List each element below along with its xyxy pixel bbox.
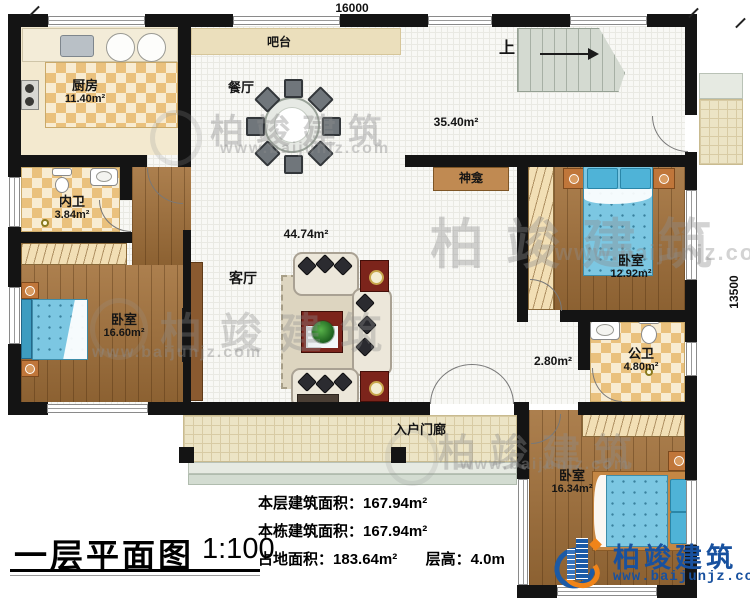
wall xyxy=(148,402,430,415)
window xyxy=(686,342,697,376)
wall xyxy=(517,585,557,598)
kitchen-bowl-icon xyxy=(137,33,166,62)
room-label-ensuite-bath: 内卫 3.84m² xyxy=(55,194,90,222)
wall xyxy=(578,322,590,370)
area-label-hallway: 2.80m² xyxy=(534,354,572,368)
window xyxy=(428,16,492,25)
room-label-kitchen: 厨房 11.40m² xyxy=(65,78,105,106)
kitchen-bowl-icon xyxy=(106,33,135,62)
ceiling-lamp-icon xyxy=(41,219,49,227)
toilet-bowl xyxy=(55,177,69,193)
stairs-direction-line xyxy=(540,53,590,55)
bed-pillow xyxy=(620,168,651,189)
title-underline xyxy=(10,569,260,572)
wall xyxy=(517,160,528,322)
wall xyxy=(685,14,697,115)
stat-storey-height: 层高： xyxy=(426,551,471,568)
stove-burner xyxy=(25,97,34,106)
nightstand-icon xyxy=(21,360,39,377)
room-label-bedroom-bottom: 卧室 16.34m² xyxy=(552,468,593,496)
floor-plan-page: 柏竣建筑 www.baijunjz.com 柏竣建筑 www.baijunjz.… xyxy=(0,0,750,614)
dining-table-top xyxy=(274,107,310,143)
toilet-icon xyxy=(52,168,72,176)
brand-url: www.baijunjz.com xyxy=(613,569,750,585)
stats-block: 本层建筑面积：167.94m² 本栋建筑面积：167.94m² 占地面积：183… xyxy=(258,490,528,573)
dimension-tick-icon xyxy=(735,18,746,29)
stairs-arrow-icon xyxy=(588,48,599,60)
window xyxy=(48,16,145,25)
window xyxy=(686,190,697,280)
wall xyxy=(8,232,132,243)
wall xyxy=(8,155,147,167)
bed-icon xyxy=(21,299,32,359)
wall xyxy=(183,230,191,402)
dimension-width: 16000 xyxy=(328,1,376,15)
area-label-dining: 35.40m² xyxy=(434,115,479,129)
side-porch-steps xyxy=(699,73,743,99)
bed-pillow xyxy=(587,168,618,189)
window xyxy=(233,16,340,25)
side-table-icon xyxy=(360,260,389,292)
room-label-living: 客厅 xyxy=(229,270,257,287)
table-lamp-icon xyxy=(369,270,384,285)
room-label-shrine: 神龛 xyxy=(459,171,483,185)
room-label-entry-porch: 入户门廊 xyxy=(394,422,446,437)
wardrobe-left xyxy=(21,243,127,265)
room-label-bedroom-left: 卧室 16.60m² xyxy=(104,312,145,340)
room-label-public-bath: 公卫 4.80m² xyxy=(624,346,659,374)
wall xyxy=(120,167,132,200)
dimension-height: 13500 xyxy=(727,270,741,314)
porch-step-1 xyxy=(188,462,517,474)
bar-counter xyxy=(191,28,401,55)
side-table-icon xyxy=(360,371,389,402)
area-label-living: 44.74m² xyxy=(284,227,329,241)
wall xyxy=(578,402,697,415)
room-label-dining: 餐厅 xyxy=(228,80,254,95)
table-lamp-icon xyxy=(369,381,384,396)
tv-cabinet-icon xyxy=(189,262,203,401)
porch-step-2 xyxy=(188,474,517,485)
wardrobe-bottom xyxy=(582,412,685,437)
sink-basin xyxy=(96,171,112,182)
stat-land-area: 占地面积：183.64m² 层高：4.0m xyxy=(258,546,528,574)
stairs-up-label: 上 xyxy=(499,40,515,59)
wall xyxy=(560,310,697,322)
title-underline-thin xyxy=(10,575,260,576)
nightstand-icon xyxy=(653,168,675,189)
wall xyxy=(340,14,428,27)
wall xyxy=(8,402,48,415)
plant-icon xyxy=(312,321,334,343)
stove-burner xyxy=(25,84,34,93)
entry-porch-floor xyxy=(183,415,517,462)
nightstand-icon xyxy=(563,168,585,189)
room-label-bedroom-right: 卧室 12.92m² xyxy=(611,253,652,281)
room-label-bar: 吧台 xyxy=(267,35,291,49)
sink-basin xyxy=(596,324,614,336)
window xyxy=(570,16,647,25)
wall xyxy=(517,402,529,479)
wall xyxy=(405,155,697,167)
toilet-bowl xyxy=(641,325,657,344)
chair-icon xyxy=(284,79,303,98)
stat-building-area: 本栋建筑面积：167.94m² xyxy=(258,518,528,546)
kitchen-sink-icon xyxy=(60,35,94,57)
chair-icon xyxy=(246,117,265,136)
wall xyxy=(8,14,21,177)
chair-icon xyxy=(284,155,303,174)
window xyxy=(9,177,20,227)
wall xyxy=(657,585,697,598)
window xyxy=(47,404,148,413)
stat-floor-area: 本层建筑面积：167.94m² xyxy=(258,490,528,518)
side-porch-floor xyxy=(699,99,743,165)
wall xyxy=(492,14,570,27)
wall xyxy=(685,376,697,480)
chair-icon xyxy=(322,117,341,136)
brand-logo-icon xyxy=(552,532,608,592)
watermark-logo-icon xyxy=(150,110,202,166)
nightstand-icon xyxy=(21,282,39,299)
window xyxy=(9,287,20,344)
porch-column xyxy=(179,447,194,463)
